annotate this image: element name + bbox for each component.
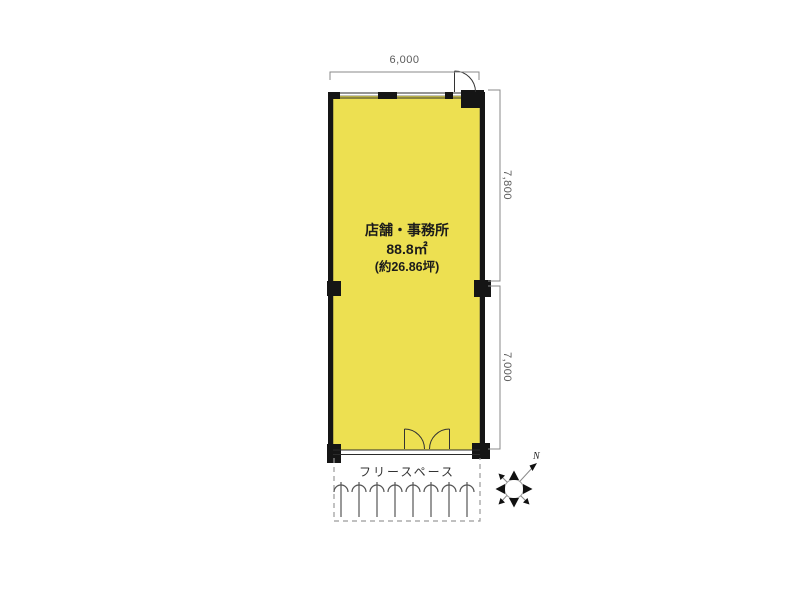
compass-point-right [523,484,533,494]
window-mullion [445,92,453,99]
bicycle-parking-icon [388,482,402,517]
compass-point-down [509,498,519,508]
bicycle-parking-icon [424,482,438,517]
door-swing-arc [455,71,476,92]
dimension-top-label: 6,000 [330,54,479,66]
room-label: 店舗・事務所 88.8㎡ (約26.86坪) [332,221,482,277]
compass-point-left [496,484,506,494]
compass-rose-icon [496,463,538,508]
free-space-label: フリースペース [334,463,480,480]
bicycle-parking-icon [352,482,366,517]
floorplan-canvas: 6,000 7,800 7,000 店舗・事務所 88.8㎡ (約26.86坪)… [0,0,799,600]
room-area-m2: 88.8㎡ [332,240,482,259]
column-bottom-right [472,443,490,459]
room-name: 店舗・事務所 [332,221,482,240]
bicycle-parking-icon [442,482,456,517]
dimension-right-upper-label: 7,800 [499,155,513,215]
column-mid-right [474,280,491,297]
north-label: N [533,451,540,462]
window-mullion [333,92,340,99]
window-wall-bottom [333,450,480,455]
compass-point-up [509,471,519,481]
floorplan-drawing [0,0,799,600]
dimension-right-lower-label: 7,000 [499,337,513,397]
bicycle-parking-icon [460,482,474,517]
bicycle-parking-icon [406,482,420,517]
dimension-bracket-top [330,72,479,80]
window-mullion [378,92,397,99]
bicycle-parking-icon [370,482,384,517]
column-mid-left [327,281,341,296]
window-wall-top [333,92,461,99]
entrance-door-icon [455,71,476,92]
bicycle-parking-icons [334,482,474,517]
room-area-tsubo: (約26.86坪) [332,258,482,277]
bicycle-parking-icon [334,482,348,517]
column-top-right [461,90,484,108]
